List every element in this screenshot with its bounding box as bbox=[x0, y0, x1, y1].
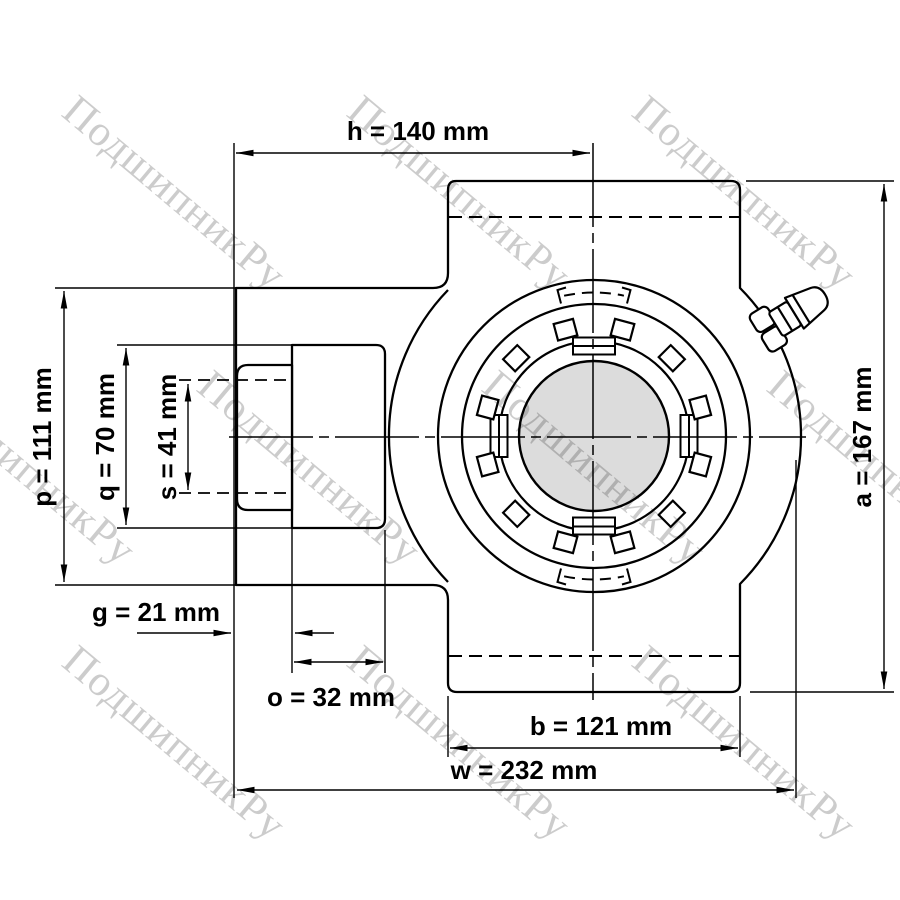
groove-arc-bottom bbox=[564, 576, 624, 579]
dimension-b-label: b = 121 mm bbox=[530, 711, 672, 741]
groove-arc-top bbox=[564, 293, 624, 296]
tooth bbox=[690, 396, 712, 420]
tooth bbox=[659, 345, 685, 371]
dimension-s: s = 41 mm bbox=[152, 374, 188, 500]
watermark-text: ПодшипникРу bbox=[339, 637, 580, 850]
watermark-text: ПодшипникРу bbox=[54, 87, 295, 300]
tooth bbox=[554, 532, 578, 554]
drawing-canvas: h = 140 mm a = 167 mm p = 111 mm q = 70 … bbox=[0, 0, 900, 900]
tooth bbox=[690, 453, 712, 477]
watermarks: ПодшипникРу ПодшипникРу ПодшипникРу Подш… bbox=[0, 87, 900, 850]
watermark-text: ПодшипникРу bbox=[54, 637, 295, 850]
tooth bbox=[611, 532, 635, 554]
dimension-g-label: g = 21 mm bbox=[92, 597, 220, 627]
watermark-text: ПодшипникРу bbox=[0, 362, 145, 575]
watermark-text: ПодшипникРу bbox=[759, 362, 900, 575]
watermark-text: ПодшипникРу bbox=[624, 637, 865, 850]
tooth bbox=[477, 453, 499, 477]
dimension-g: g = 21 mm bbox=[92, 597, 334, 633]
dimension-q-label: q = 70 mm bbox=[90, 373, 120, 501]
bearing-dimension-drawing: h = 140 mm a = 167 mm p = 111 mm q = 70 … bbox=[0, 0, 900, 900]
tooth bbox=[554, 319, 578, 341]
dimension-p: p = 111 mm bbox=[27, 291, 64, 582]
dimension-s-label: s = 41 mm bbox=[152, 374, 182, 500]
watermark-text: ПодшипникРу bbox=[624, 87, 865, 300]
tooth bbox=[611, 319, 635, 341]
tooth bbox=[503, 501, 529, 527]
